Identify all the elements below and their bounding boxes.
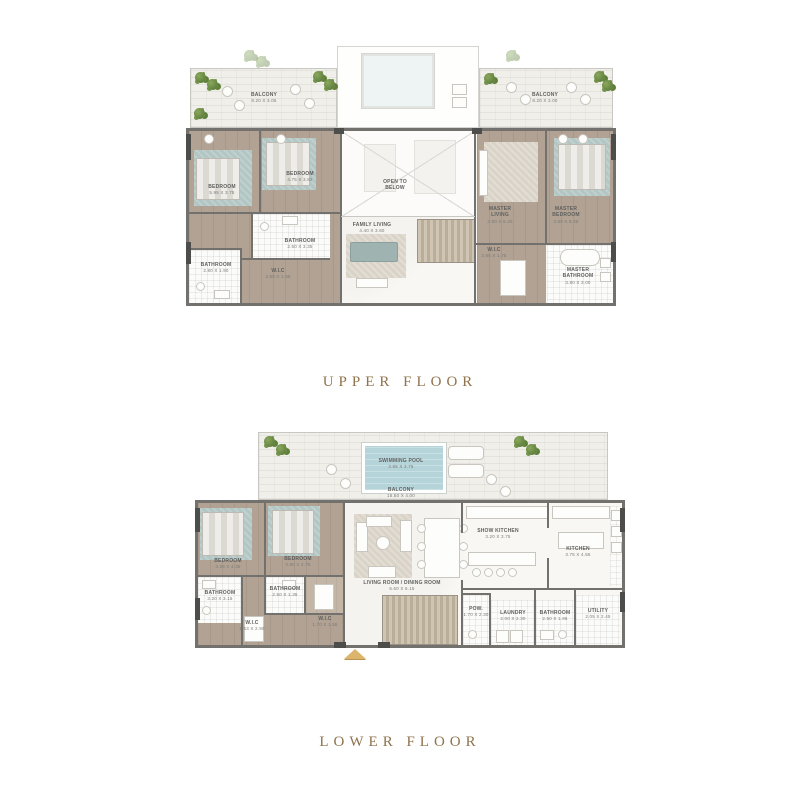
plant-icon [506, 50, 517, 61]
wall-jamb [186, 134, 191, 160]
wall [545, 131, 547, 245]
utility [576, 595, 620, 645]
tv-console [479, 150, 488, 196]
room-label-bedroom-3: BEDROOM 3.35 X 4.35 [214, 558, 242, 570]
room-label-master-bedroom: MASTER BEDROOM 3.80 X 5.45 [548, 206, 584, 224]
sofa [368, 566, 396, 578]
sun-lounger [448, 464, 484, 478]
room-dim: 3.80 X 5.40 [482, 218, 518, 224]
room-label-balcony: BALCONY 15.50 X 4.00 [387, 487, 415, 499]
room-dim: 3.80 X 5.45 [548, 218, 584, 224]
room-dim: 2.80 X 1.90 [201, 268, 232, 274]
room-dim: 2.50 X 1.95 [540, 616, 571, 622]
pool-skylight [362, 54, 434, 108]
plant-icon [207, 79, 218, 90]
room-label-open-to-below: OPEN TO BELOW [377, 179, 413, 192]
wall [189, 212, 341, 214]
plant-icon [244, 50, 255, 61]
kitchen-counter [552, 506, 610, 519]
bar-stool [508, 568, 517, 577]
plant-icon [194, 108, 205, 119]
balcony-chair [222, 86, 233, 97]
lower-floor-plan: SWIMMING POOL 3.85 X 3.75 BALCONY 15.50 … [186, 430, 626, 662]
room-label-wic-1: W.I.C 3.60 X 1.85 [265, 268, 290, 280]
room-dim: 8.20 X 3.05 [251, 98, 277, 104]
room-label-family-living: FAMILY LIVING 4.40 X 3.60 [353, 222, 391, 234]
room-label-wic-4: W.I.C 1.63 X 2.90 [239, 620, 264, 632]
sofa [350, 242, 398, 262]
wall [534, 588, 536, 645]
sofa [366, 516, 392, 527]
terrace-chair [500, 486, 511, 497]
room-label-bathroom-3: BATHROOM 3.20 X 3.15 [205, 590, 236, 602]
master-living-rug [484, 142, 538, 202]
room-label-master-bathroom: MASTER BATHROOM 3.80 X 3.00 [560, 267, 596, 285]
tv-console [356, 278, 388, 288]
room-label-living-dining: LIVING ROOM / DINING ROOM 6.60 X 6.15 [363, 580, 440, 592]
plant-icon [264, 436, 275, 447]
dining-chair [417, 542, 426, 551]
sink [600, 258, 611, 268]
lower-floor-title: LOWER FLOOR [0, 734, 800, 751]
toilet [468, 630, 477, 639]
plant-icon [324, 79, 335, 90]
room-name: MASTER LIVING [482, 206, 518, 219]
balcony-chair [234, 100, 245, 111]
balcony-chair [290, 84, 301, 95]
room-label-master-living: MASTER LIVING 3.80 X 5.40 [482, 206, 518, 224]
balcony-chair [580, 94, 591, 105]
wall [574, 588, 576, 645]
sun-lounger [448, 446, 484, 460]
wall-jamb [611, 242, 616, 262]
kitchen-counter [466, 506, 548, 519]
kitchen-island [468, 552, 536, 566]
wall [259, 131, 261, 214]
room-dim: 3.20 X 3.75 [477, 534, 519, 540]
room-dim: 3.35 X 4.35 [214, 564, 242, 570]
room-label-utility: UTILITY 2.05 X 2.45 [585, 608, 610, 620]
sink [282, 216, 298, 225]
room-dim: 2.05 X 2.45 [585, 614, 610, 620]
wall [264, 503, 266, 577]
room-dim: 1.70 X 1.55 [312, 622, 337, 628]
coffee-table [376, 536, 390, 550]
wardrobe-mirror [500, 260, 526, 296]
wall-jamb [334, 128, 344, 134]
balcony-chair [506, 82, 517, 93]
room-label-bedroom-1: BEDROOM 5.95 X 3.75 [208, 184, 236, 196]
roof-bench [452, 97, 467, 108]
terrace-chair [340, 478, 351, 489]
toilet [202, 606, 211, 615]
room-dim: 3.20 X 3.15 [205, 596, 236, 602]
wall [474, 131, 476, 303]
bathtub [560, 249, 600, 266]
plant-icon [276, 444, 287, 455]
room-label-show-kitchen: SHOW KITCHEN 3.20 X 3.75 [477, 528, 519, 540]
room-dim: 1.70 X 2.30 [463, 612, 488, 618]
room-dim: 2.00 X 2.30 [500, 616, 526, 622]
wall-jamb [186, 242, 191, 264]
bed [202, 512, 244, 556]
room-dim: 8.20 X 3.00 [532, 98, 558, 104]
wall [251, 212, 253, 260]
room-label-balcony-right: BALCONY 8.20 X 3.00 [532, 92, 558, 104]
room-dim: 3.60 X 4.75 [284, 562, 312, 568]
wall [547, 558, 549, 588]
wall [240, 248, 242, 303]
room-label-wic-3: W.I.C 1.70 X 1.55 [312, 616, 337, 628]
roof-bench [452, 84, 467, 95]
staircase [417, 219, 475, 263]
toilet [196, 282, 205, 291]
wall-jamb [378, 642, 390, 648]
wall [304, 575, 306, 615]
upper-floor-plan: BALCONY 8.20 X 3.05 BALCONY 8.20 X 3.00 … [186, 46, 616, 308]
wall-jamb [195, 598, 200, 620]
dining-chair [459, 542, 468, 551]
room-label-bedroom-4: BEDROOM 3.60 X 4.75 [284, 556, 312, 568]
terrace-chair [486, 474, 497, 485]
wall [189, 248, 242, 250]
room-dim: 15.50 X 4.00 [387, 493, 415, 499]
terrace-chair [326, 464, 337, 475]
room-dim: 3.85 X 3.75 [379, 464, 424, 470]
room-dim: 4.75 X 3.82 [286, 177, 314, 183]
floorplan-sheet: BALCONY 8.20 X 3.05 BALCONY 8.20 X 3.00 … [0, 0, 800, 800]
bed [272, 510, 314, 554]
wall [264, 575, 266, 615]
upper-floor-title: UPPER FLOOR [0, 374, 800, 391]
room-dim: 2.50 X 1.35 [270, 592, 301, 598]
room-label-laundry: LAUNDRY 2.00 X 2.30 [500, 610, 526, 622]
room-label-powder: POW. 1.70 X 2.30 [463, 606, 488, 618]
wall [489, 593, 491, 645]
room-label-bathroom-left: BATHROOM 2.80 X 1.90 [201, 262, 232, 274]
room-dim: 3.75 X 4.55 [565, 552, 590, 558]
dining-chair [459, 560, 468, 569]
room-dim: 5.95 X 3.75 [208, 190, 236, 196]
entrance-arrow [344, 649, 366, 659]
dining-chair [417, 560, 426, 569]
room-dim: 6.60 X 6.15 [363, 586, 440, 592]
dining-table [424, 518, 460, 578]
wall [461, 588, 623, 590]
room-dim: 1.63 X 2.90 [239, 626, 264, 632]
wall [475, 243, 613, 245]
void-cross-lines [341, 131, 475, 217]
wall [547, 503, 549, 528]
wall-jamb [611, 134, 616, 160]
room-label-wic-master: W.I.C 3.85 X 1.75 [481, 247, 506, 259]
plant-icon [484, 73, 495, 84]
room-dim: 2.50 X 3.35 [285, 244, 316, 250]
lounge-chair [204, 134, 214, 144]
wall [241, 258, 330, 260]
bar-stool [496, 568, 505, 577]
wall [343, 503, 345, 645]
room-dim: 3.85 X 1.75 [481, 253, 506, 259]
room-dim: 4.40 X 3.60 [353, 228, 391, 234]
plant-icon [526, 444, 537, 455]
plant-icon [514, 436, 525, 447]
room-dim: 3.60 X 1.85 [265, 274, 290, 280]
toilet [260, 222, 269, 231]
room-label-swimming-pool: SWIMMING POOL 3.85 X 3.75 [379, 458, 424, 470]
wall-jamb [620, 508, 625, 532]
wall [264, 613, 344, 615]
plant-icon [195, 72, 206, 83]
wall-jamb [472, 128, 482, 134]
room-label-kitchen: KITCHEN 3.75 X 4.55 [565, 546, 590, 558]
void-railing [341, 216, 475, 217]
wall-jamb [334, 642, 346, 648]
plant-icon [256, 56, 267, 67]
wall [463, 593, 491, 595]
wall [241, 575, 243, 645]
lounge-chair [558, 134, 568, 144]
room-label-bathroom-4: BATHROOM 2.50 X 1.35 [270, 586, 301, 598]
wall [461, 503, 463, 533]
bed [558, 144, 606, 190]
washer [496, 630, 509, 643]
staircase [382, 595, 458, 645]
sofa [400, 520, 412, 552]
sink [540, 630, 554, 640]
lounge-chair [276, 134, 286, 144]
balcony-chair [520, 94, 531, 105]
room-dim: 3.80 X 3.00 [560, 279, 596, 285]
bar-stool [472, 568, 481, 577]
room-label-bathroom-center: BATHROOM 2.50 X 3.35 [285, 238, 316, 250]
powder-room [463, 595, 490, 645]
plant-icon [313, 71, 324, 82]
dryer [510, 630, 523, 643]
room-name: MASTER BATHROOM [560, 267, 596, 280]
room-label-bathroom-5: BATHROOM 2.50 X 1.95 [540, 610, 571, 622]
appliance [611, 542, 622, 553]
balcony-chair [304, 98, 315, 109]
dining-chair [417, 524, 426, 533]
plant-icon [602, 80, 613, 91]
sink [600, 272, 611, 282]
wardrobe-mirror [314, 584, 334, 610]
wall-jamb [195, 508, 200, 532]
wall-jamb [620, 592, 625, 612]
wall [198, 575, 344, 577]
sink [202, 580, 216, 589]
lounge-chair [578, 134, 588, 144]
bar-stool [484, 568, 493, 577]
room-label-bedroom-2: BEDROOM 4.75 X 3.82 [286, 171, 314, 183]
room-label-balcony-left: BALCONY 8.20 X 3.05 [251, 92, 277, 104]
sink [214, 290, 230, 299]
room-name: MASTER BEDROOM [548, 206, 584, 219]
toilet [558, 630, 567, 639]
wall [340, 131, 342, 303]
balcony-chair [566, 82, 577, 93]
room-name: OPEN TO BELOW [377, 179, 413, 192]
